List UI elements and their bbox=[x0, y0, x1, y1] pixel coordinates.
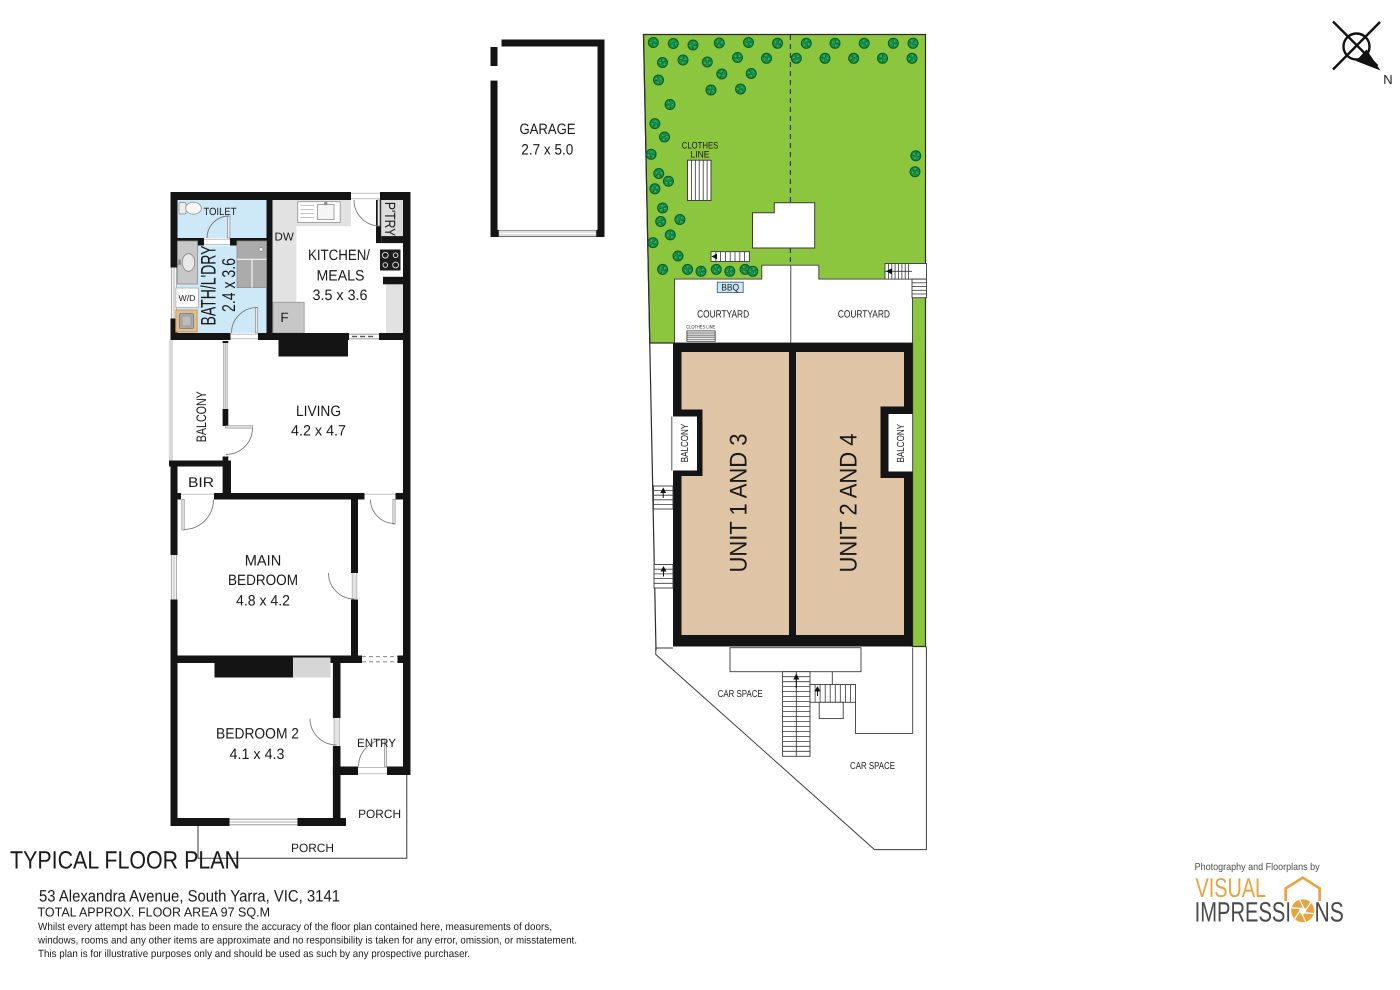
svg-text:MAIN: MAIN bbox=[245, 553, 282, 570]
svg-text:CAR SPACE: CAR SPACE bbox=[718, 689, 763, 700]
svg-text:BATH/L'DRY: BATH/L'DRY bbox=[198, 245, 221, 325]
svg-text:IMPRESSI: IMPRESSI bbox=[1195, 897, 1291, 928]
svg-text:windows, rooms and any other i: windows, rooms and any other items are a… bbox=[37, 935, 577, 947]
svg-text:BBQ: BBQ bbox=[721, 282, 739, 293]
svg-text:W/D: W/D bbox=[179, 293, 196, 303]
svg-text:4.8 x 4.2: 4.8 x 4.2 bbox=[236, 593, 290, 610]
svg-text:4.1 x 4.3: 4.1 x 4.3 bbox=[230, 746, 285, 763]
svg-text:This plan is for illustrative: This plan is for illustrative purposes o… bbox=[38, 948, 470, 960]
svg-text:Photography and Floorplans by: Photography and Floorplans by bbox=[1195, 862, 1320, 873]
svg-text:N: N bbox=[1383, 72, 1392, 87]
svg-text:BEDROOM: BEDROOM bbox=[228, 572, 298, 589]
svg-text:53 Alexandra Avenue, South Yar: 53 Alexandra Avenue, South Yarra, VIC, 3… bbox=[39, 888, 340, 906]
svg-text:UNIT 1 AND 3: UNIT 1 AND 3 bbox=[726, 434, 752, 573]
svg-text:BEDROOM 2: BEDROOM 2 bbox=[216, 726, 299, 743]
svg-text:COURTYARD: COURTYARD bbox=[838, 309, 890, 321]
svg-text:GARAGE: GARAGE bbox=[520, 121, 576, 138]
svg-text:PORCH: PORCH bbox=[358, 807, 401, 821]
svg-text:BALCONY: BALCONY bbox=[194, 391, 210, 442]
svg-text:4.2 x 4.7: 4.2 x 4.7 bbox=[291, 423, 346, 440]
svg-text:ENTRY: ENTRY bbox=[357, 736, 396, 750]
svg-text:TOTAL APPROX. FLOOR AREA 97 SQ: TOTAL APPROX. FLOOR AREA 97 SQ.M bbox=[38, 905, 271, 920]
svg-text:F: F bbox=[280, 310, 288, 325]
svg-text:TYPICAL FLOOR PLAN: TYPICAL FLOOR PLAN bbox=[10, 847, 240, 875]
svg-text:Whilst every attempt has been: Whilst every attempt has been made to en… bbox=[38, 921, 552, 933]
svg-text:TOILET: TOILET bbox=[204, 206, 238, 218]
svg-text:KITCHEN/: KITCHEN/ bbox=[308, 247, 371, 264]
svg-text:P'TRY: P'TRY bbox=[381, 202, 397, 237]
svg-text:LIVING: LIVING bbox=[296, 403, 341, 420]
svg-text:COURTYARD: COURTYARD bbox=[697, 309, 749, 321]
svg-text:UNIT 2 AND 4: UNIT 2 AND 4 bbox=[836, 433, 862, 572]
svg-text:DW: DW bbox=[275, 231, 294, 243]
svg-text:2.4 x 3.6: 2.4 x 3.6 bbox=[220, 258, 240, 312]
svg-text:LINE: LINE bbox=[691, 150, 710, 161]
svg-text:BALCONY: BALCONY bbox=[680, 424, 691, 463]
svg-text:2.7 x 5.0: 2.7 x 5.0 bbox=[521, 142, 573, 159]
svg-text:BIR: BIR bbox=[188, 474, 214, 490]
svg-text:CAR SPACE: CAR SPACE bbox=[850, 761, 895, 772]
svg-text:PORCH: PORCH bbox=[291, 841, 334, 855]
svg-text:NS: NS bbox=[1315, 897, 1344, 928]
svg-text:CLOTHES LINE: CLOTHES LINE bbox=[686, 324, 716, 330]
svg-text:BALCONY: BALCONY bbox=[896, 424, 907, 463]
svg-text:3.5 x 3.6: 3.5 x 3.6 bbox=[313, 287, 368, 304]
svg-text:MEALS: MEALS bbox=[317, 268, 365, 285]
